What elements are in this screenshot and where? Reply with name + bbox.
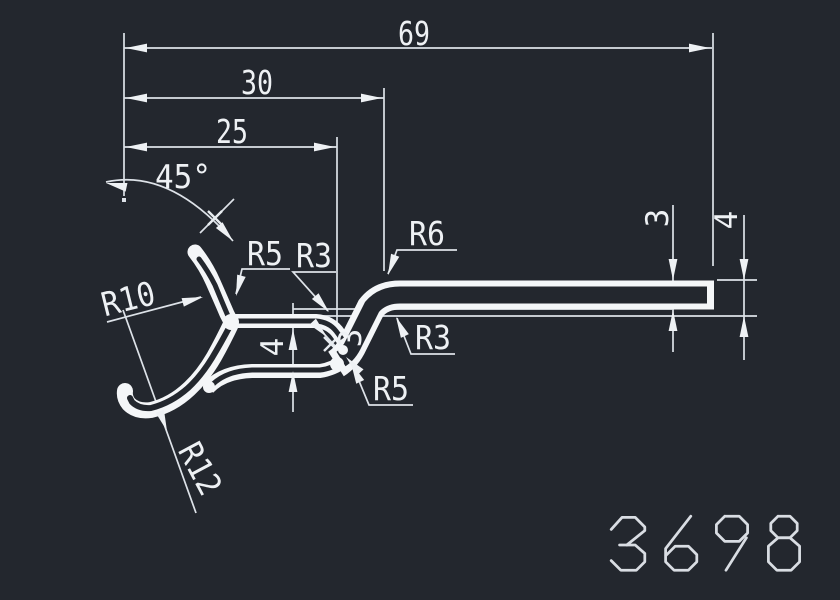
dim-mid-width-label: 30 xyxy=(241,63,273,102)
leader-r6 xyxy=(388,250,457,274)
dim-flange-height-label: 4 xyxy=(709,211,745,230)
drawing-number-digit-3 xyxy=(611,545,645,570)
drawing-number-digit-8 xyxy=(768,538,799,570)
radius-label-r5-top: R5 xyxy=(247,234,283,273)
profile-flange-bar xyxy=(336,295,714,364)
drawing-number-digit-3 xyxy=(611,517,645,545)
dim-angle-label: 45° xyxy=(155,157,211,196)
leader-r3-mid xyxy=(293,272,336,311)
radius-label-r12: R12 xyxy=(170,436,230,502)
dim-flange-thickness-label: 3 xyxy=(640,209,676,228)
cad-drawing: 69 30 25 45° R5 R3 R6 R3 R5 R10 R12 4 3 … xyxy=(0,0,840,600)
radius-label-r6: R6 xyxy=(409,214,445,253)
drawing-number-digit-9 xyxy=(716,516,747,541)
dim-overall-width-label: 69 xyxy=(398,14,430,53)
dim-wall-thickness-label: 3 xyxy=(333,329,369,348)
core-finger xyxy=(199,259,230,319)
junction-patch-top xyxy=(223,314,239,330)
radius-label-r3-mid: R3 xyxy=(296,236,332,275)
drawing-number-digit-6 xyxy=(666,516,697,570)
cad-viewport[interactable]: 69 30 25 45° R5 R3 R6 R3 R5 R10 R12 4 3 … xyxy=(0,0,840,600)
dim-channel-gap-label: 4 xyxy=(255,338,291,357)
drawing-number-digit-8 xyxy=(771,516,797,538)
dim-inner-width-label: 25 xyxy=(216,112,248,151)
junction-patch-s-bend xyxy=(330,357,344,371)
radius-label-r5-bottom: R5 xyxy=(373,369,409,408)
radius-label-r3-right: R3 xyxy=(415,318,451,357)
radius-label-r10: R10 xyxy=(97,273,159,324)
drawing-number xyxy=(611,516,799,570)
angle-vertex-dot xyxy=(122,198,126,202)
junction-patch-hook xyxy=(203,381,215,393)
